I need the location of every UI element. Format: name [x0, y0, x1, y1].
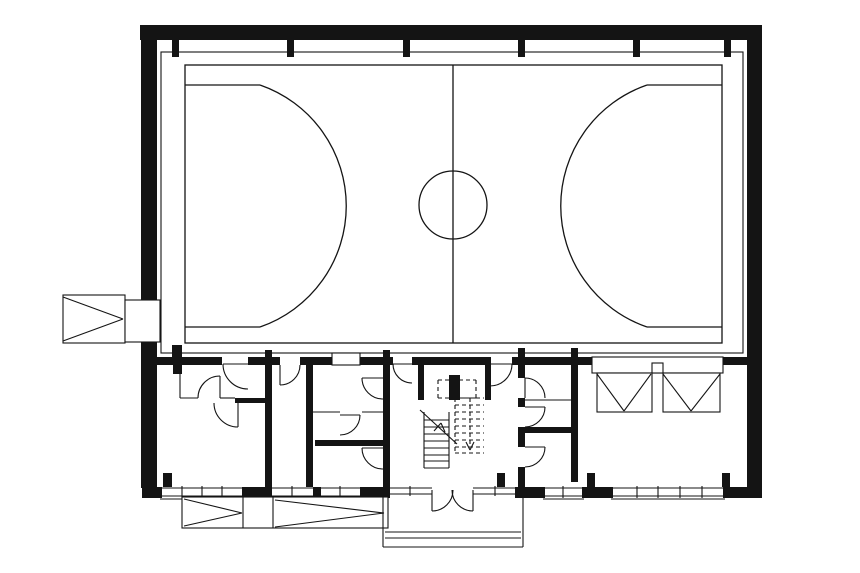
sports-court	[185, 65, 722, 343]
equipment-folding-doors	[597, 373, 720, 412]
exterior-ramp-left	[63, 295, 160, 343]
exterior-ramp-bottom	[182, 497, 388, 528]
entrance-porch	[383, 497, 523, 547]
floor-plan-page	[0, 0, 860, 573]
floor-plan-canvas	[0, 0, 860, 573]
